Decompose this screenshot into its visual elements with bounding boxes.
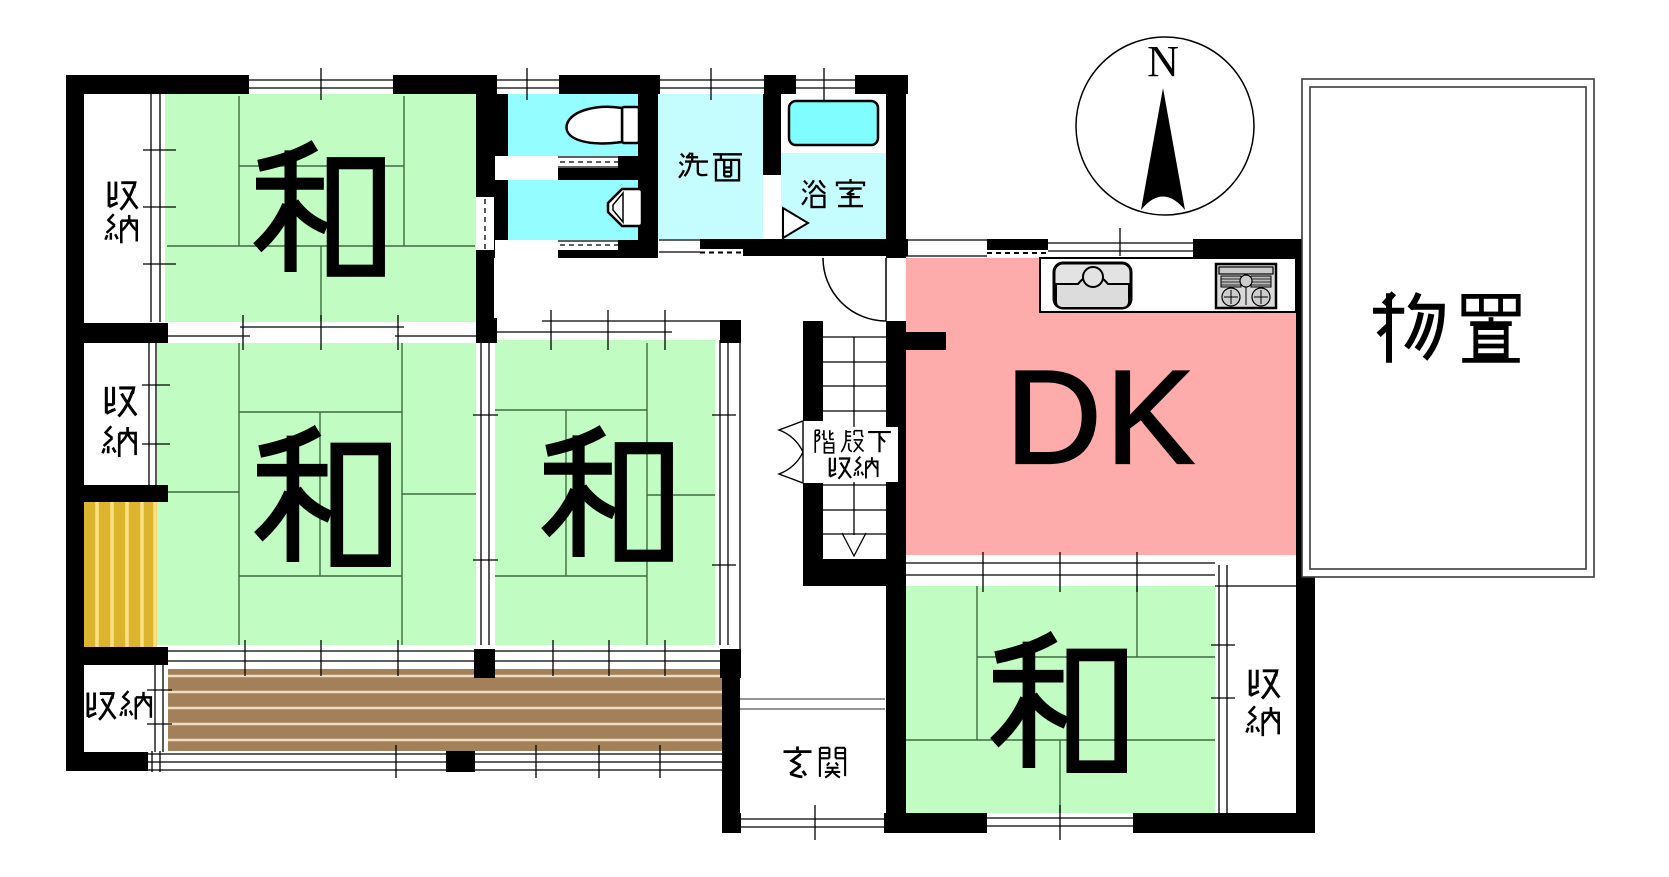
svg-text:DK: DK — [1006, 344, 1199, 492]
svg-text:N: N — [1147, 37, 1179, 86]
